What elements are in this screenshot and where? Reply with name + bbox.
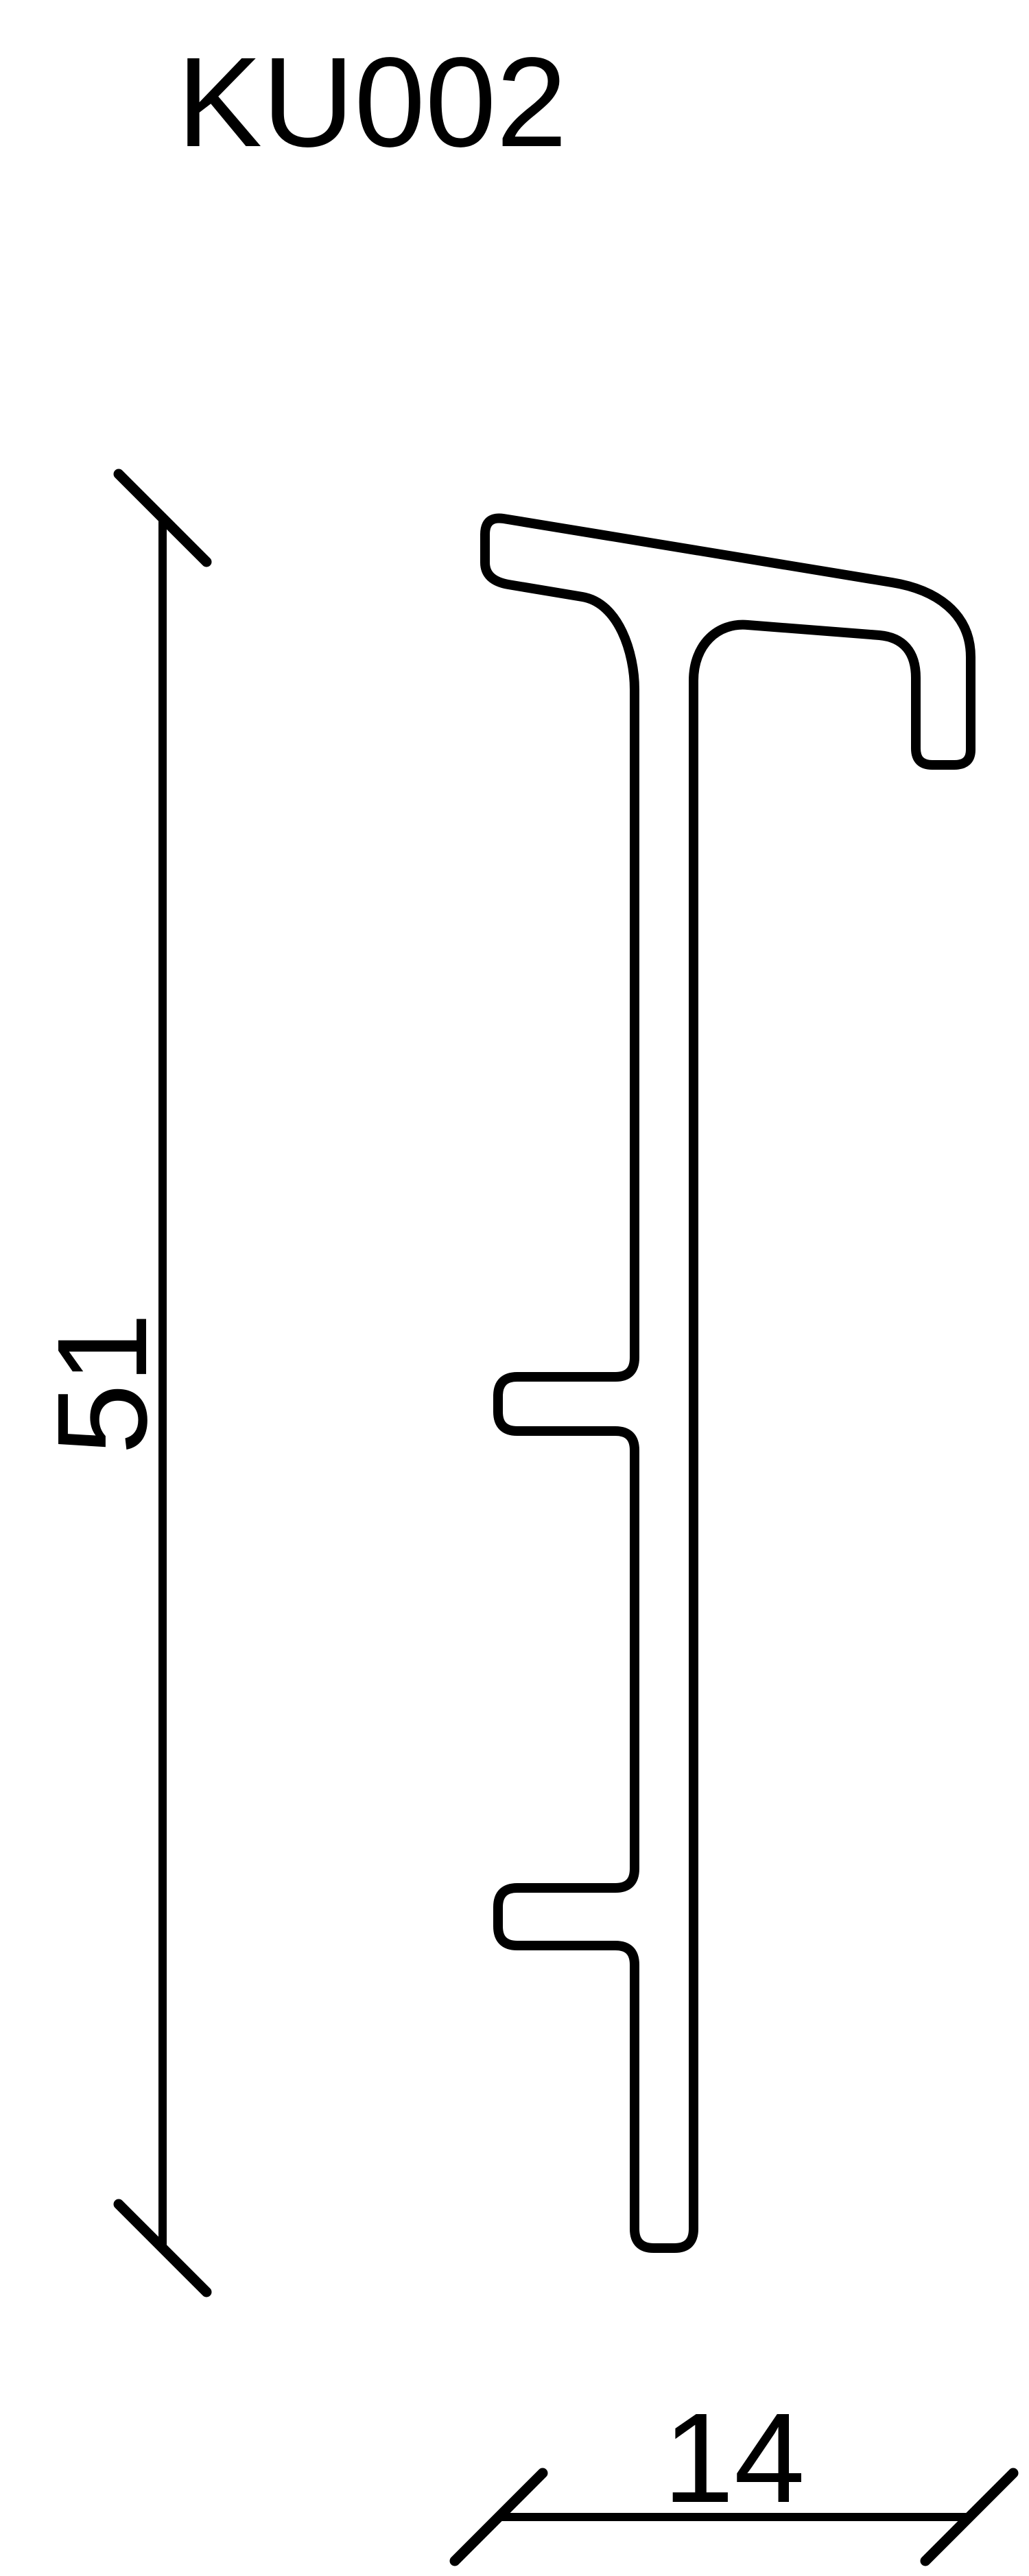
height-dimension: 51 <box>32 474 206 2292</box>
drawing-title: KU002 <box>177 32 567 174</box>
width-dimension-label: 14 <box>663 2387 805 2529</box>
width-dimension: 14 <box>455 2387 1013 2561</box>
drawing-canvas: KU002 51 14 <box>0 0 1029 2576</box>
height-dimension-label: 51 <box>32 1313 174 1455</box>
profile-outline-path <box>485 518 971 2248</box>
profile-cross-section-drawing: KU002 51 14 <box>0 0 1029 2576</box>
